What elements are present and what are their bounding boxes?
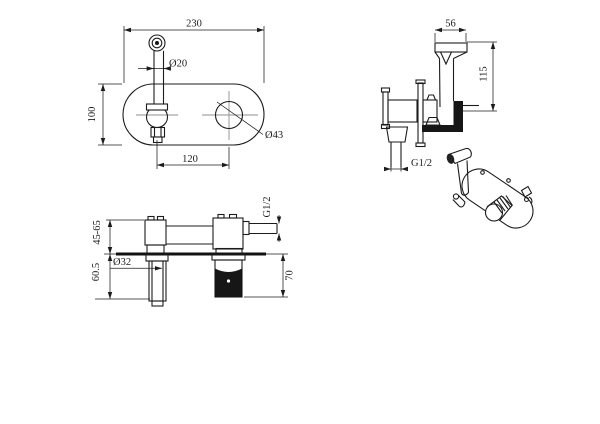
valve-body-side — [388, 100, 417, 122]
sprayer-head — [435, 43, 467, 52]
inlet-fitting — [387, 127, 408, 142]
iso-holder-ring — [453, 194, 458, 199]
dim-holder-projection: 70 — [285, 270, 296, 281]
cartridge-assembly — [145, 217, 168, 307]
section-view-dimensions: 45-65 60.5 Ø32 G1/2 70 — [91, 197, 296, 300]
holder-side-view: 56 115 G1/2 — [382, 19, 498, 172]
lever-collar — [151, 128, 165, 138]
mixer-body-side — [213, 218, 243, 249]
dim-head-width: 56 — [445, 19, 456, 30]
lever-pivot-dot — [155, 41, 159, 45]
holder-socket-opening — [215, 269, 242, 298]
dim-handle-diameter: Ø32 — [113, 257, 131, 268]
wall-section-view: 45-65 60.5 Ø32 G1/2 70 — [91, 197, 296, 307]
spout-assembly — [166, 215, 277, 298]
dim-overall-height: 115 — [479, 66, 490, 81]
sprayer-nozzle — [441, 52, 452, 64]
socket-pin — [227, 279, 230, 282]
lever-foot — [154, 137, 163, 143]
technical-drawing-page: 230 100 Ø20 Ø43 120 — [0, 0, 600, 424]
front-view-dimensions: 230 100 Ø20 Ø43 120 — [87, 19, 283, 170]
dim-wall-depth-range: 45-65 — [92, 220, 103, 245]
iso-knob — [486, 196, 513, 222]
front-view: 230 100 Ø20 Ø43 120 — [87, 19, 283, 170]
sprayer-outline — [422, 43, 479, 132]
flange-plate — [418, 83, 423, 143]
dim-inlet-thread: G1/2 — [411, 158, 432, 169]
isometric-view — [445, 148, 533, 228]
drawing-svg: 230 100 Ø20 Ø43 120 — [0, 0, 600, 424]
iso-fittings — [481, 171, 532, 204]
dim-plate-width: 230 — [186, 19, 202, 30]
cartridge-body — [145, 220, 166, 245]
dim-lever-diameter: Ø20 — [169, 59, 187, 70]
handle-foot — [152, 301, 163, 306]
dim-center-spacing: 120 — [182, 154, 198, 165]
dim-handle-projection: 60.5 — [91, 263, 102, 281]
dim-outlet-diameter: Ø43 — [265, 130, 283, 141]
dim-outlet-thread: G1/2 — [262, 197, 273, 218]
lever-handle — [147, 35, 168, 143]
dim-plate-height: 100 — [87, 107, 98, 123]
